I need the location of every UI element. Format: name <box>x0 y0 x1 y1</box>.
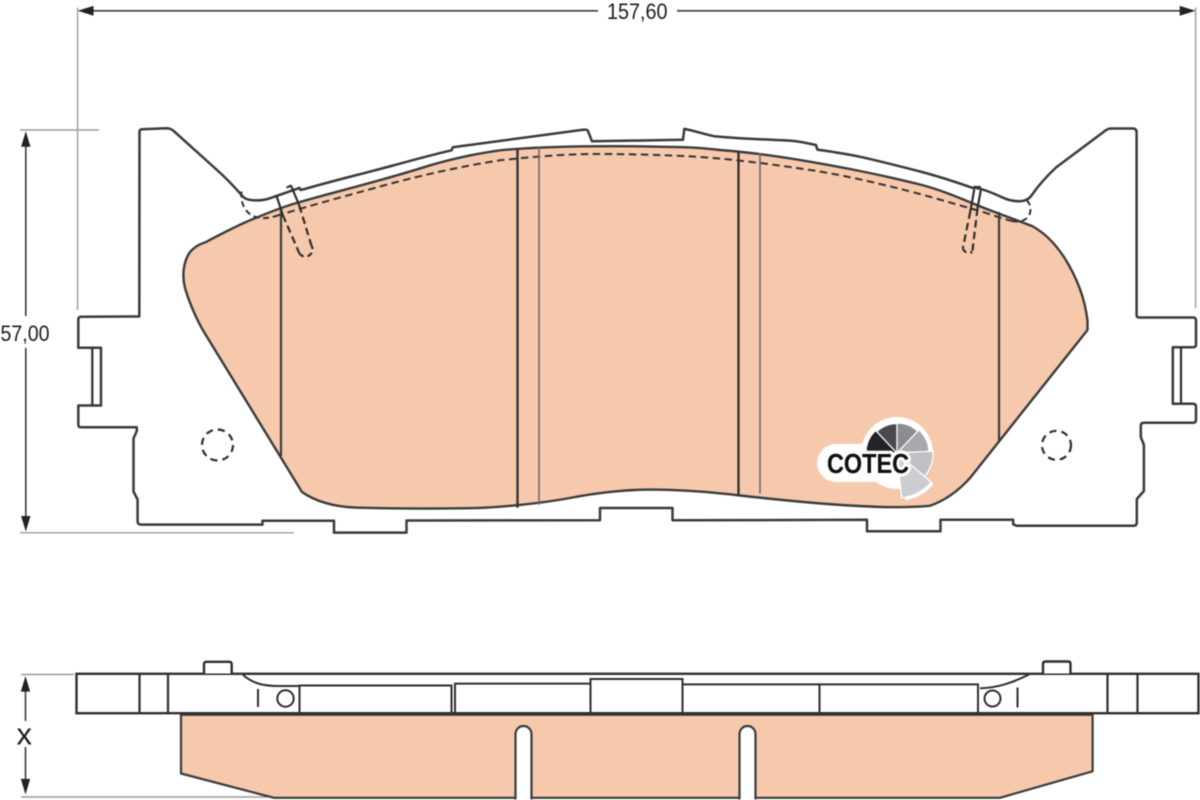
svg-text:x: x <box>17 717 33 752</box>
svg-text:COTEC: COTEC <box>827 448 909 479</box>
svg-text:57,00: 57,00 <box>1 321 50 346</box>
svg-text:157,60: 157,60 <box>607 0 668 24</box>
